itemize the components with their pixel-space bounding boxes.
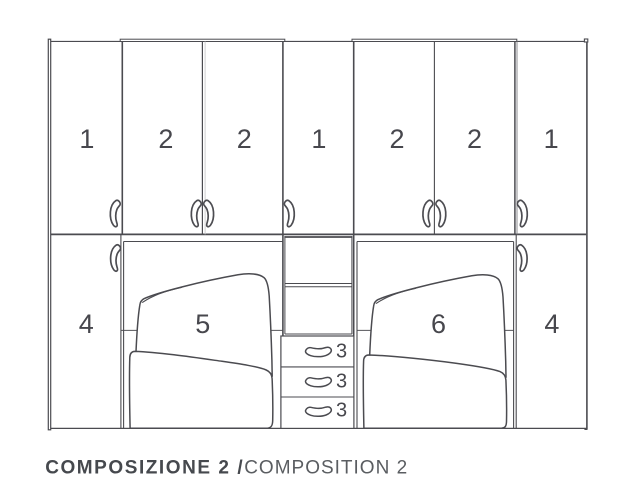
svg-text:3: 3 [336, 340, 347, 362]
svg-text:4: 4 [544, 309, 559, 339]
svg-text:1: 1 [544, 124, 559, 154]
svg-text:COMPOSIZIONE 2 /COMPOSITION 2: COMPOSIZIONE 2 /COMPOSITION 2 [45, 458, 408, 479]
svg-text:2: 2 [389, 124, 404, 154]
svg-text:1: 1 [79, 124, 94, 154]
svg-text:3: 3 [336, 400, 347, 422]
svg-text:2: 2 [237, 124, 252, 154]
svg-text:2: 2 [158, 124, 173, 154]
svg-text:5: 5 [195, 309, 210, 339]
svg-text:6: 6 [431, 309, 446, 339]
svg-text:2: 2 [467, 124, 482, 154]
svg-text:4: 4 [79, 309, 94, 339]
svg-text:3: 3 [336, 371, 347, 393]
svg-text:1: 1 [311, 124, 326, 154]
